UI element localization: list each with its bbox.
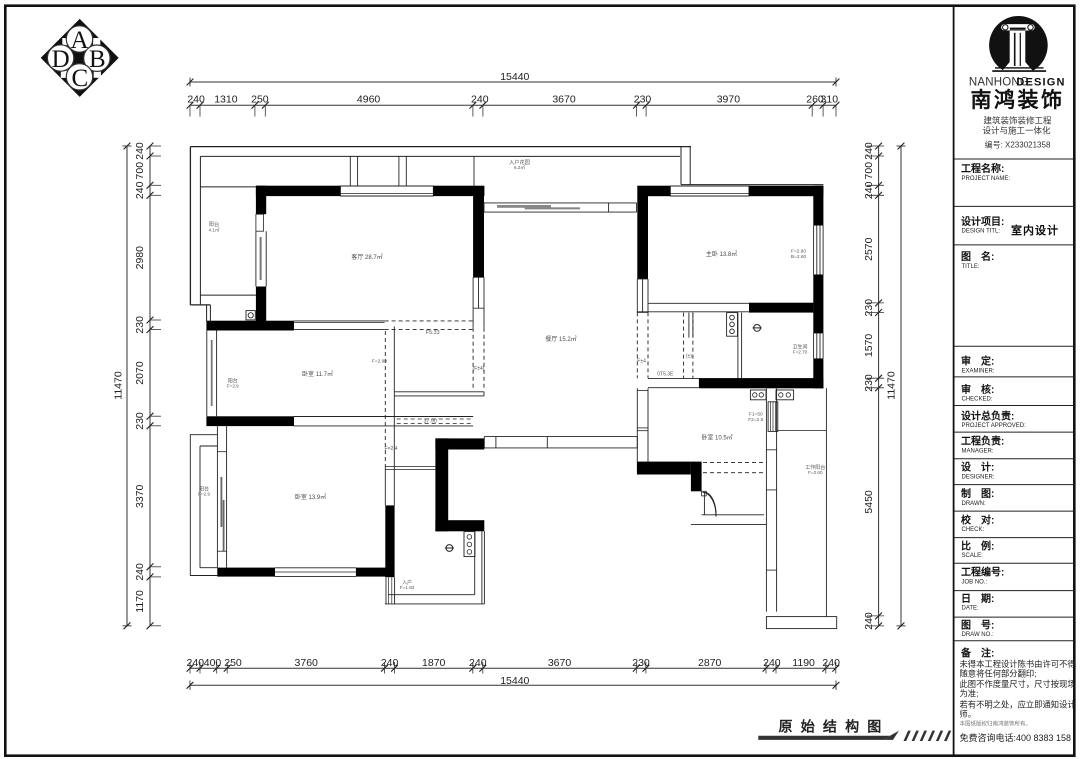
svg-text:室内设计: 室内设计 — [1011, 223, 1059, 237]
svg-text:F=1.93: F=1.93 — [400, 585, 415, 590]
svg-text:F=2.9: F=2.9 — [198, 491, 210, 496]
svg-text:随意将任何部分翻印;: 随意将任何部分翻印; — [960, 669, 1037, 679]
svg-text:230: 230 — [632, 657, 650, 669]
svg-text:240: 240 — [134, 142, 146, 160]
svg-text:校 对:: 校 对: — [961, 514, 994, 527]
svg-text:未得本工程设计陈书由许可不得: 未得本工程设计陈书由许可不得 — [960, 659, 1076, 669]
svg-text:1870: 1870 — [422, 657, 446, 669]
svg-text:1170: 1170 — [134, 590, 146, 613]
svg-text:15440: 15440 — [500, 675, 529, 687]
svg-text:卧室 10.5㎡: 卧室 10.5㎡ — [701, 434, 732, 442]
svg-text:F=2.90: F=2.90 — [372, 359, 387, 365]
svg-text:2570: 2570 — [863, 237, 875, 261]
svg-text:比 例:: 比 例: — [961, 540, 994, 553]
svg-text:2070: 2070 — [134, 361, 146, 385]
svg-text:3670: 3670 — [548, 657, 572, 669]
svg-text:4960: 4960 — [357, 94, 381, 106]
svg-text:230: 230 — [863, 374, 875, 392]
svg-text:免费咨询电话:400 8383 158: 免费咨询电话:400 8383 158 — [960, 732, 1072, 743]
svg-text:(±): (±) — [686, 354, 692, 360]
svg-text:D: D — [52, 46, 70, 73]
svg-text:240: 240 — [469, 657, 487, 669]
svg-text:230: 230 — [863, 299, 875, 317]
svg-text:3670: 3670 — [552, 94, 576, 106]
svg-text:15440: 15440 — [500, 71, 529, 83]
svg-text:F=2.9: F=2.9 — [227, 384, 239, 389]
svg-text:F=2.90: F=2.90 — [791, 249, 806, 255]
svg-text:A: A — [70, 27, 88, 54]
svg-text:4.1㎡: 4.1㎡ — [209, 226, 220, 232]
svg-text:F2=2.6: F2=2.6 — [748, 417, 763, 423]
svg-text:F=2.4: F=2.4 — [385, 446, 398, 452]
svg-text:3370: 3370 — [134, 484, 146, 508]
svg-text:EXAMINER:: EXAMINER: — [962, 369, 995, 375]
svg-text:250: 250 — [251, 94, 269, 106]
svg-text:MANAGER:: MANAGER: — [962, 449, 994, 455]
svg-text:卧室 13.9㎡: 卧室 13.9㎡ — [295, 493, 326, 501]
svg-text:师。: 师。 — [960, 709, 977, 719]
svg-text:C: C — [71, 65, 88, 92]
svg-text:备 注:: 备 注: — [960, 647, 994, 660]
svg-text:制 图:: 制 图: — [961, 487, 994, 500]
svg-text:F=2.70: F=2.70 — [793, 350, 808, 355]
svg-text:建筑装饰装修工程: 建筑装饰装修工程 — [983, 116, 1052, 126]
svg-text:230: 230 — [134, 412, 146, 430]
svg-text:F±4: F±4 — [637, 359, 646, 365]
svg-text:CHECKED:: CHECKED: — [962, 397, 993, 403]
svg-text:1190: 1190 — [792, 657, 815, 669]
svg-text:700: 700 — [863, 162, 875, 180]
svg-text:2980: 2980 — [134, 246, 146, 270]
svg-text:240: 240 — [863, 181, 875, 199]
svg-text:11470: 11470 — [113, 371, 125, 400]
svg-text:2870: 2870 — [698, 657, 722, 669]
svg-text:设计总负责:: 设计总负责: — [961, 410, 1014, 423]
svg-text:工程编号:: 工程编号: — [961, 566, 1004, 579]
svg-text:240: 240 — [381, 657, 399, 669]
svg-text:F1=50: F1=50 — [749, 412, 763, 418]
svg-text:DRAWN:: DRAWN: — [962, 501, 986, 507]
svg-text:PROJECT NAME:: PROJECT NAME: — [962, 176, 1011, 182]
svg-text:230: 230 — [134, 316, 146, 334]
svg-text:230: 230 — [634, 94, 652, 106]
svg-text:编号: X233021358: 编号: X233021358 — [985, 140, 1051, 150]
svg-text:主卧 13.8㎡: 主卧 13.8㎡ — [706, 250, 737, 258]
svg-text:B=2.60: B=2.60 — [791, 254, 807, 260]
svg-text:F=2.60: F=2.60 — [808, 470, 823, 475]
svg-text:设计与施工一体化: 设计与施工一体化 — [982, 126, 1051, 136]
svg-text:37.90: 37.90 — [423, 418, 437, 424]
svg-text:3760: 3760 — [295, 657, 319, 669]
svg-text:PROJECT APPROVED:: PROJECT APPROVED: — [962, 423, 1027, 429]
svg-text:图 名:: 图 名: — [961, 250, 994, 263]
svg-text:DESIGN: DESIGN — [1016, 77, 1065, 89]
svg-text:310: 310 — [821, 94, 839, 106]
svg-text:餐厅 15.2㎡: 餐厅 15.2㎡ — [545, 335, 576, 343]
svg-text:南鸿装饰: 南鸿装饰 — [971, 88, 1065, 112]
svg-text:客厅 28.7㎡: 客厅 28.7㎡ — [351, 253, 382, 261]
svg-text:240: 240 — [471, 94, 489, 106]
svg-text:3970: 3970 — [717, 94, 741, 106]
svg-text:若有不明之处，应立即通知设计: 若有不明之处，应立即通知设计 — [960, 700, 1076, 710]
svg-text:6.2㎡: 6.2㎡ — [514, 164, 525, 170]
svg-text:240: 240 — [187, 657, 205, 669]
svg-text:1570: 1570 — [863, 334, 875, 358]
svg-text:CHECK:: CHECK: — [962, 527, 985, 533]
svg-text:5450: 5450 — [863, 490, 875, 514]
svg-text:审 核:: 审 核: — [961, 383, 994, 396]
svg-text:F5.33: F5.33 — [426, 330, 440, 336]
svg-text:工程名称:: 工程名称: — [961, 162, 1004, 175]
svg-text:400: 400 — [204, 657, 222, 669]
svg-text:设计项目:: 设计项目: — [961, 215, 1004, 228]
svg-text:SCALE:: SCALE: — [962, 553, 984, 559]
svg-text:11470: 11470 — [886, 371, 898, 400]
svg-text:为准;: 为准; — [960, 689, 979, 699]
svg-text:B: B — [89, 46, 106, 73]
svg-text:TITLE:: TITLE: — [962, 264, 980, 270]
svg-text:240: 240 — [763, 657, 781, 669]
svg-text:DESIGN TITL:: DESIGN TITL: — [962, 229, 1001, 235]
svg-text:250: 250 — [224, 657, 242, 669]
svg-text:240: 240 — [863, 612, 875, 630]
svg-text:1310: 1310 — [214, 94, 238, 106]
svg-text:240: 240 — [134, 181, 146, 199]
svg-text:JOB NO.:: JOB NO.: — [962, 580, 988, 586]
svg-text:0T5.3E: 0T5.3E — [657, 371, 674, 377]
svg-text:240: 240 — [863, 142, 875, 160]
svg-text:DATE:: DATE: — [962, 606, 980, 612]
svg-text:此图不作度量尺寸，尺寸按现场: 此图不作度量尺寸，尺寸按现场 — [960, 679, 1076, 689]
svg-text:700: 700 — [134, 162, 146, 180]
svg-text:240: 240 — [187, 94, 205, 106]
svg-text:240: 240 — [134, 563, 146, 581]
svg-text:原始结构图: 原始结构图 — [779, 719, 890, 735]
svg-text:卧室 11.7㎡: 卧室 11.7㎡ — [302, 370, 333, 378]
svg-text:DESIGNER:: DESIGNER: — [962, 475, 995, 481]
svg-text:本图纸版权归南鸿装饰所有。: 本图纸版权归南鸿装饰所有。 — [960, 720, 1032, 728]
svg-text:日 期:: 日 期: — [961, 592, 994, 605]
svg-text:(F±4): (F±4) — [473, 366, 485, 372]
svg-text:240: 240 — [822, 657, 840, 669]
svg-text:DRAW NO.:: DRAW NO.: — [962, 632, 994, 638]
svg-text:设 计:: 设 计: — [961, 461, 994, 474]
svg-text:图 号:: 图 号: — [961, 620, 994, 632]
svg-text:工程负责:: 工程负责: — [961, 435, 1004, 448]
svg-text:审 定:: 审 定: — [961, 355, 994, 368]
